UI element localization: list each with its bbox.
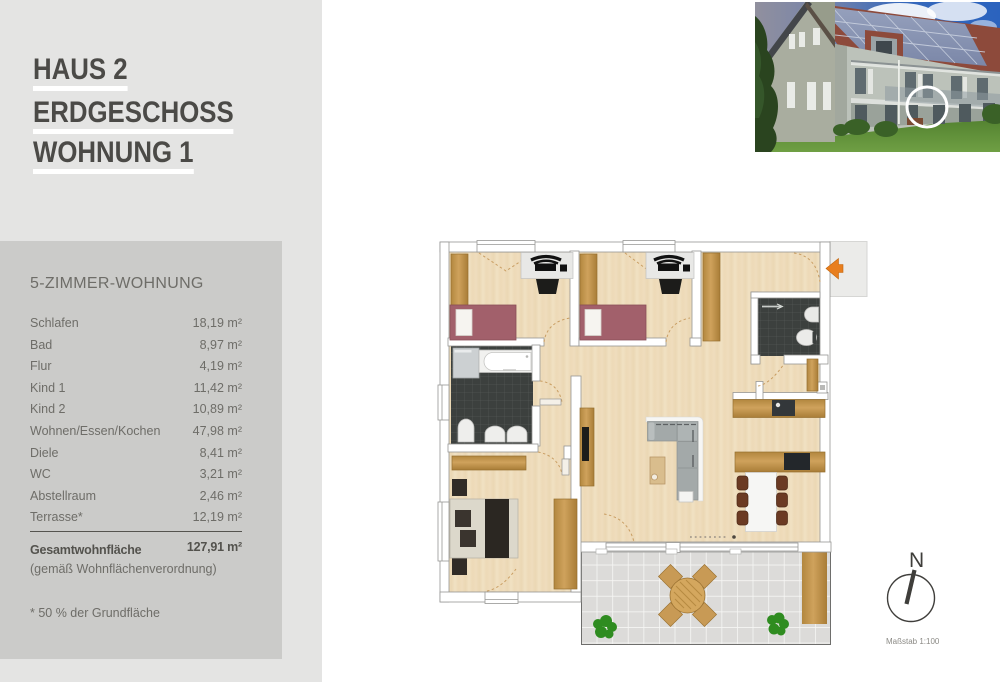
svg-text:Maßstab 1:100: Maßstab 1:100 (886, 637, 940, 646)
svg-text:N: N (909, 549, 924, 572)
